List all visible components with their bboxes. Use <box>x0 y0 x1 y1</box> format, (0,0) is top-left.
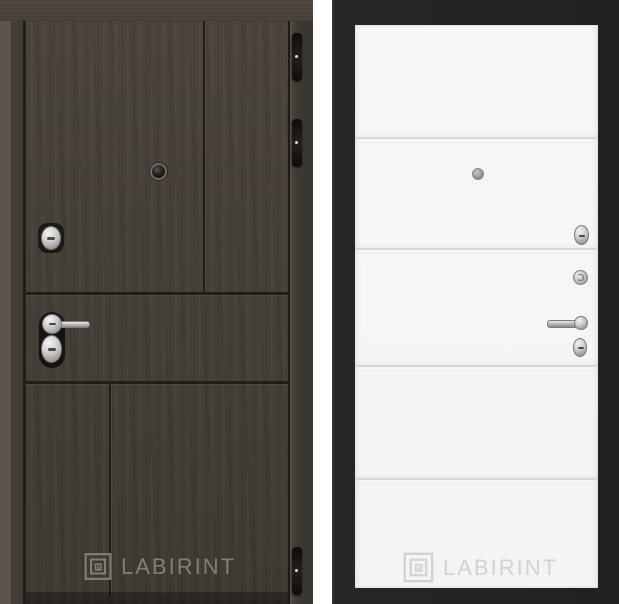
brand-name-text: LABIRINT <box>443 557 558 579</box>
door-interior-photo[interactable]: LABIRINT <box>332 0 619 604</box>
labyrinth-icon <box>84 551 112 582</box>
panel-groove-horizontal-upper <box>26 292 288 295</box>
door-leaf-exterior: LABIRINT <box>26 21 288 604</box>
molding-line-2 <box>355 248 598 250</box>
brand-name-text: LABIRINT <box>121 556 236 578</box>
door-bottom-shadow <box>26 592 288 604</box>
hinge-pin <box>295 55 298 58</box>
brand-watermark: LABIRINT <box>84 551 236 582</box>
keyhole-slot <box>48 348 56 351</box>
molding-line-3 <box>355 365 598 367</box>
peephole <box>472 168 484 180</box>
thumbturn-slot <box>47 237 55 240</box>
thumbturn-lock <box>574 225 589 245</box>
door-frame-jamb-right <box>288 21 313 604</box>
brand-watermark: LABIRINT <box>403 552 558 583</box>
hinge-pin <box>295 569 298 572</box>
product-photo-two-doors: LABIRINT <box>0 0 619 604</box>
door-frame-lintel <box>0 0 313 23</box>
thumbturn-lock <box>41 226 61 250</box>
molding-line-1 <box>355 137 598 139</box>
lock-knob <box>573 270 588 285</box>
hinge-bottom <box>292 547 302 595</box>
door-frame-jamb-left <box>0 21 26 604</box>
labyrinth-icon <box>403 552 434 583</box>
handle-rosette <box>574 316 588 330</box>
rosette-slot <box>49 323 56 325</box>
thumbturn-slot <box>579 235 585 237</box>
keyhole-escutcheon <box>41 335 62 363</box>
molding-line-4 <box>355 478 598 480</box>
keyhole-slot <box>578 347 584 349</box>
keyhole-escutcheon <box>573 338 587 357</box>
handle-rosette <box>42 314 62 334</box>
panel-groove-vertical-top <box>203 21 205 294</box>
door-leaf-interior: LABIRINT <box>355 25 598 588</box>
peephole <box>150 163 167 180</box>
hinge-middle <box>292 119 302 167</box>
knob-turn-mark <box>577 274 584 281</box>
hinge-pin <box>295 141 298 144</box>
panel-groove-horizontal-lower <box>26 381 288 384</box>
hinge-top <box>292 33 302 81</box>
door-exterior-photo[interactable]: LABIRINT <box>0 0 313 604</box>
